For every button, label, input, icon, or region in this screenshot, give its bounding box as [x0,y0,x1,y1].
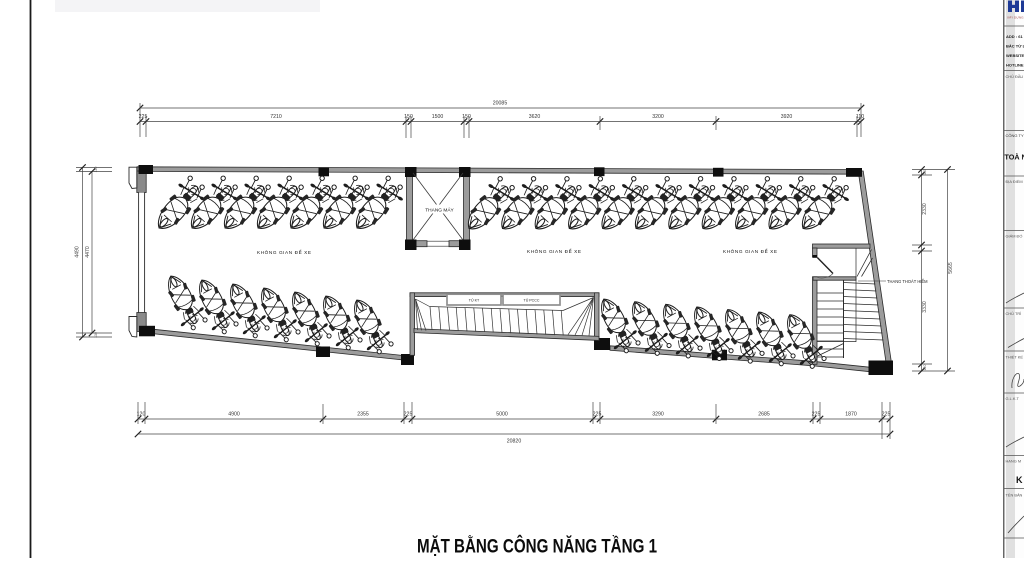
svg-text:3200: 3200 [652,114,664,120]
svg-text:225: 225 [404,412,413,418]
svg-text:20085: 20085 [493,101,508,107]
svg-text:HẠNG M: HẠNG M [1006,459,1022,464]
svg-text:CHỦ TRÌ: CHỦ TRÌ [1006,311,1022,316]
svg-text:120: 120 [923,365,927,371]
svg-text:BẮC TỪ L: BẮC TỪ L [1006,44,1024,49]
svg-text:4900: 4900 [228,412,240,418]
svg-text:225: 225 [882,412,891,418]
svg-text:2330: 2330 [922,203,928,215]
svg-text:1870: 1870 [845,412,857,418]
svg-text:THANG THOÁT HIỂM: THANG THOÁT HIỂM [887,279,928,284]
svg-text:CHỦ ĐẦU: CHỦ ĐẦU [1006,74,1024,79]
svg-text:KHÔNG GIAN ĐỂ XE: KHÔNG GIAN ĐỂ XE [723,248,777,254]
svg-text:2685: 2685 [758,412,770,418]
svg-text:2355: 2355 [357,412,369,418]
svg-text:3330: 3330 [922,301,928,313]
svg-text:THIẾT KẾ: THIẾT KẾ [1006,355,1024,360]
svg-text:TỦ KT: TỦ KT [469,298,480,303]
svg-text:130: 130 [923,169,927,175]
svg-text:THANG MÁY: THANG MÁY [425,207,454,214]
svg-text:ĐỊA ĐIỂM: ĐỊA ĐIỂM [1006,179,1023,184]
svg-text:5000: 5000 [496,412,508,418]
svg-text:3920: 3920 [781,114,793,120]
svg-text:1500: 1500 [432,114,444,120]
svg-text:4470: 4470 [85,246,91,258]
svg-text:TÊN BẢN: TÊN BẢN [1006,493,1023,498]
svg-text:7210: 7210 [270,114,282,120]
svg-text:KHÔNG GIAN ĐỂ XE: KHÔNG GIAN ĐỂ XE [527,248,581,254]
svg-text:3290: 3290 [652,412,664,418]
svg-text:5665: 5665 [948,262,954,274]
svg-text:20820: 20820 [507,439,522,445]
svg-text:K: K [1016,475,1023,485]
svg-text:KHÔNG GIAN ĐỂ XE: KHÔNG GIAN ĐỂ XE [257,249,311,255]
svg-text:150: 150 [404,114,413,120]
svg-text:XÂY DỰNG: XÂY DỰNG [1007,16,1024,20]
svg-text:MẶT BẰNG CÔNG NĂNG TẦNG 1: MẶT BẰNG CÔNG NĂNG TẦNG 1 [417,534,657,558]
svg-text:ADD : 61: ADD : 61 [1006,34,1023,39]
svg-text:130: 130 [94,167,98,173]
svg-text:GIÁM ĐỐ: GIÁM ĐỐ [1006,234,1023,239]
svg-text:HOTLINE: HOTLINE [1006,63,1024,68]
svg-text:CÔNG TY: CÔNG TY [1006,133,1024,138]
svg-text:TOÀ N: TOÀ N [1005,153,1024,162]
svg-text:4490: 4490 [75,246,81,258]
svg-text:150: 150 [462,114,471,120]
svg-text:TỦ PCCC: TỦ PCCC [524,298,540,303]
svg-text:130: 130 [94,332,98,338]
svg-text:WEBSITE: WEBSITE [1006,53,1024,58]
svg-text:3620: 3620 [529,114,541,120]
svg-text:G.L.K.T: G.L.K.T [1006,396,1020,401]
